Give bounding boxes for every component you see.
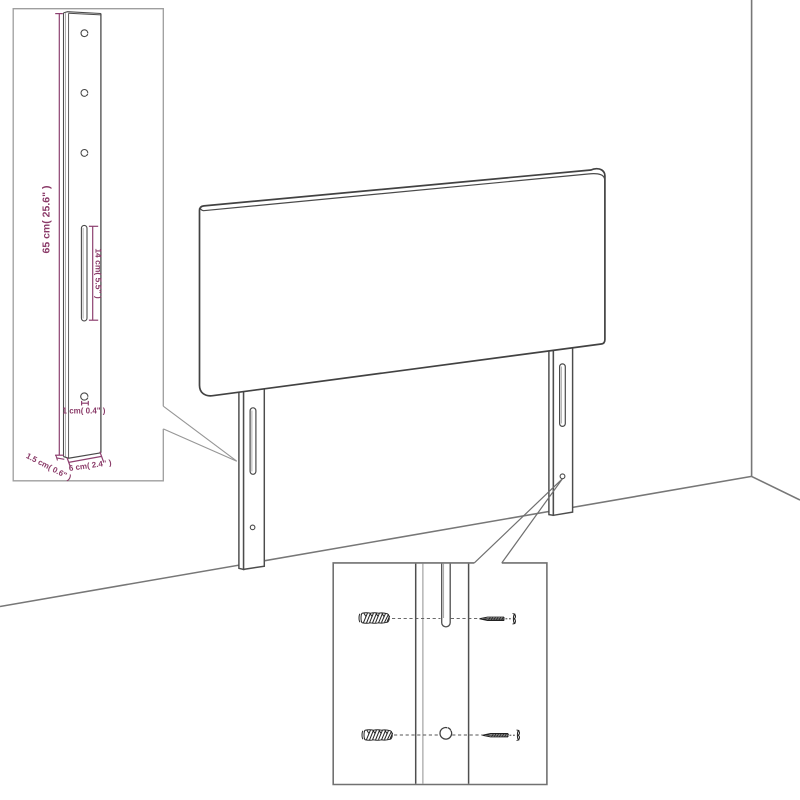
svg-text:1 cm( 0.4" ): 1 cm( 0.4" ): [63, 406, 106, 415]
svg-text:65 cm( 25.6" ): 65 cm( 25.6" ): [40, 185, 52, 253]
svg-text:14 cm( 5.5" ): 14 cm( 5.5" ): [93, 248, 103, 299]
